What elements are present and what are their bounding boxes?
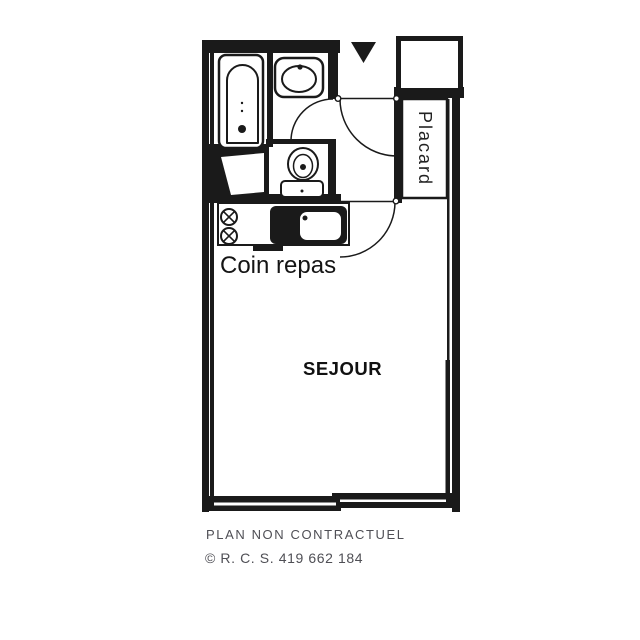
wall-bathroom-right-upper [328, 40, 338, 99]
hinge-dot-1 [335, 96, 341, 102]
entry-square [399, 39, 461, 91]
toilet-dot [300, 164, 306, 170]
wall-left-inner [210, 53, 214, 503]
bathtub-mark-2 [241, 110, 243, 112]
bathtub-outline [219, 55, 263, 148]
toilet-tank-dot [301, 190, 304, 193]
window-glazing-left [214, 503, 336, 506]
hinge-dot-2 [394, 96, 400, 102]
dining-area-label: Coin repas [220, 252, 336, 280]
kitchen-sink-dot [303, 216, 308, 221]
living-room-label: SEJOUR [303, 358, 382, 380]
wall-right-outer [452, 91, 460, 512]
wall-bathroom-partition-vertical [267, 53, 273, 147]
bathroom-door-swing-arc [291, 99, 333, 141]
wall-bathroom-right-lower [328, 141, 336, 199]
registration-number-text: © R. C. S. 419 662 184 [205, 550, 363, 566]
bathtub-drain [238, 125, 246, 133]
plan-disclaimer-text: PLAN NON CONTRACTUEL [206, 527, 406, 542]
wall-bathroom-partition-horizontal [266, 139, 336, 144]
entry-door-swing-arc [340, 99, 397, 156]
bathtub-mark-1 [241, 102, 243, 104]
counter-tab [253, 244, 283, 251]
window-glazing-right [340, 500, 446, 503]
closet-label: Placard [402, 99, 447, 198]
wall-left-outer [202, 40, 209, 512]
wall-top [202, 40, 340, 53]
floor-plan-drawing [0, 0, 640, 640]
entrance-arrow-icon [351, 42, 376, 63]
washbasin-faucet-dot [297, 64, 302, 69]
toilet-tank [281, 181, 323, 197]
floor-plan-page: Placard Coin repas SEJOUR PLAN NON CONTR… [0, 0, 640, 640]
hinge-dot-3 [393, 198, 399, 204]
wall-right-inner-lower [446, 360, 451, 500]
